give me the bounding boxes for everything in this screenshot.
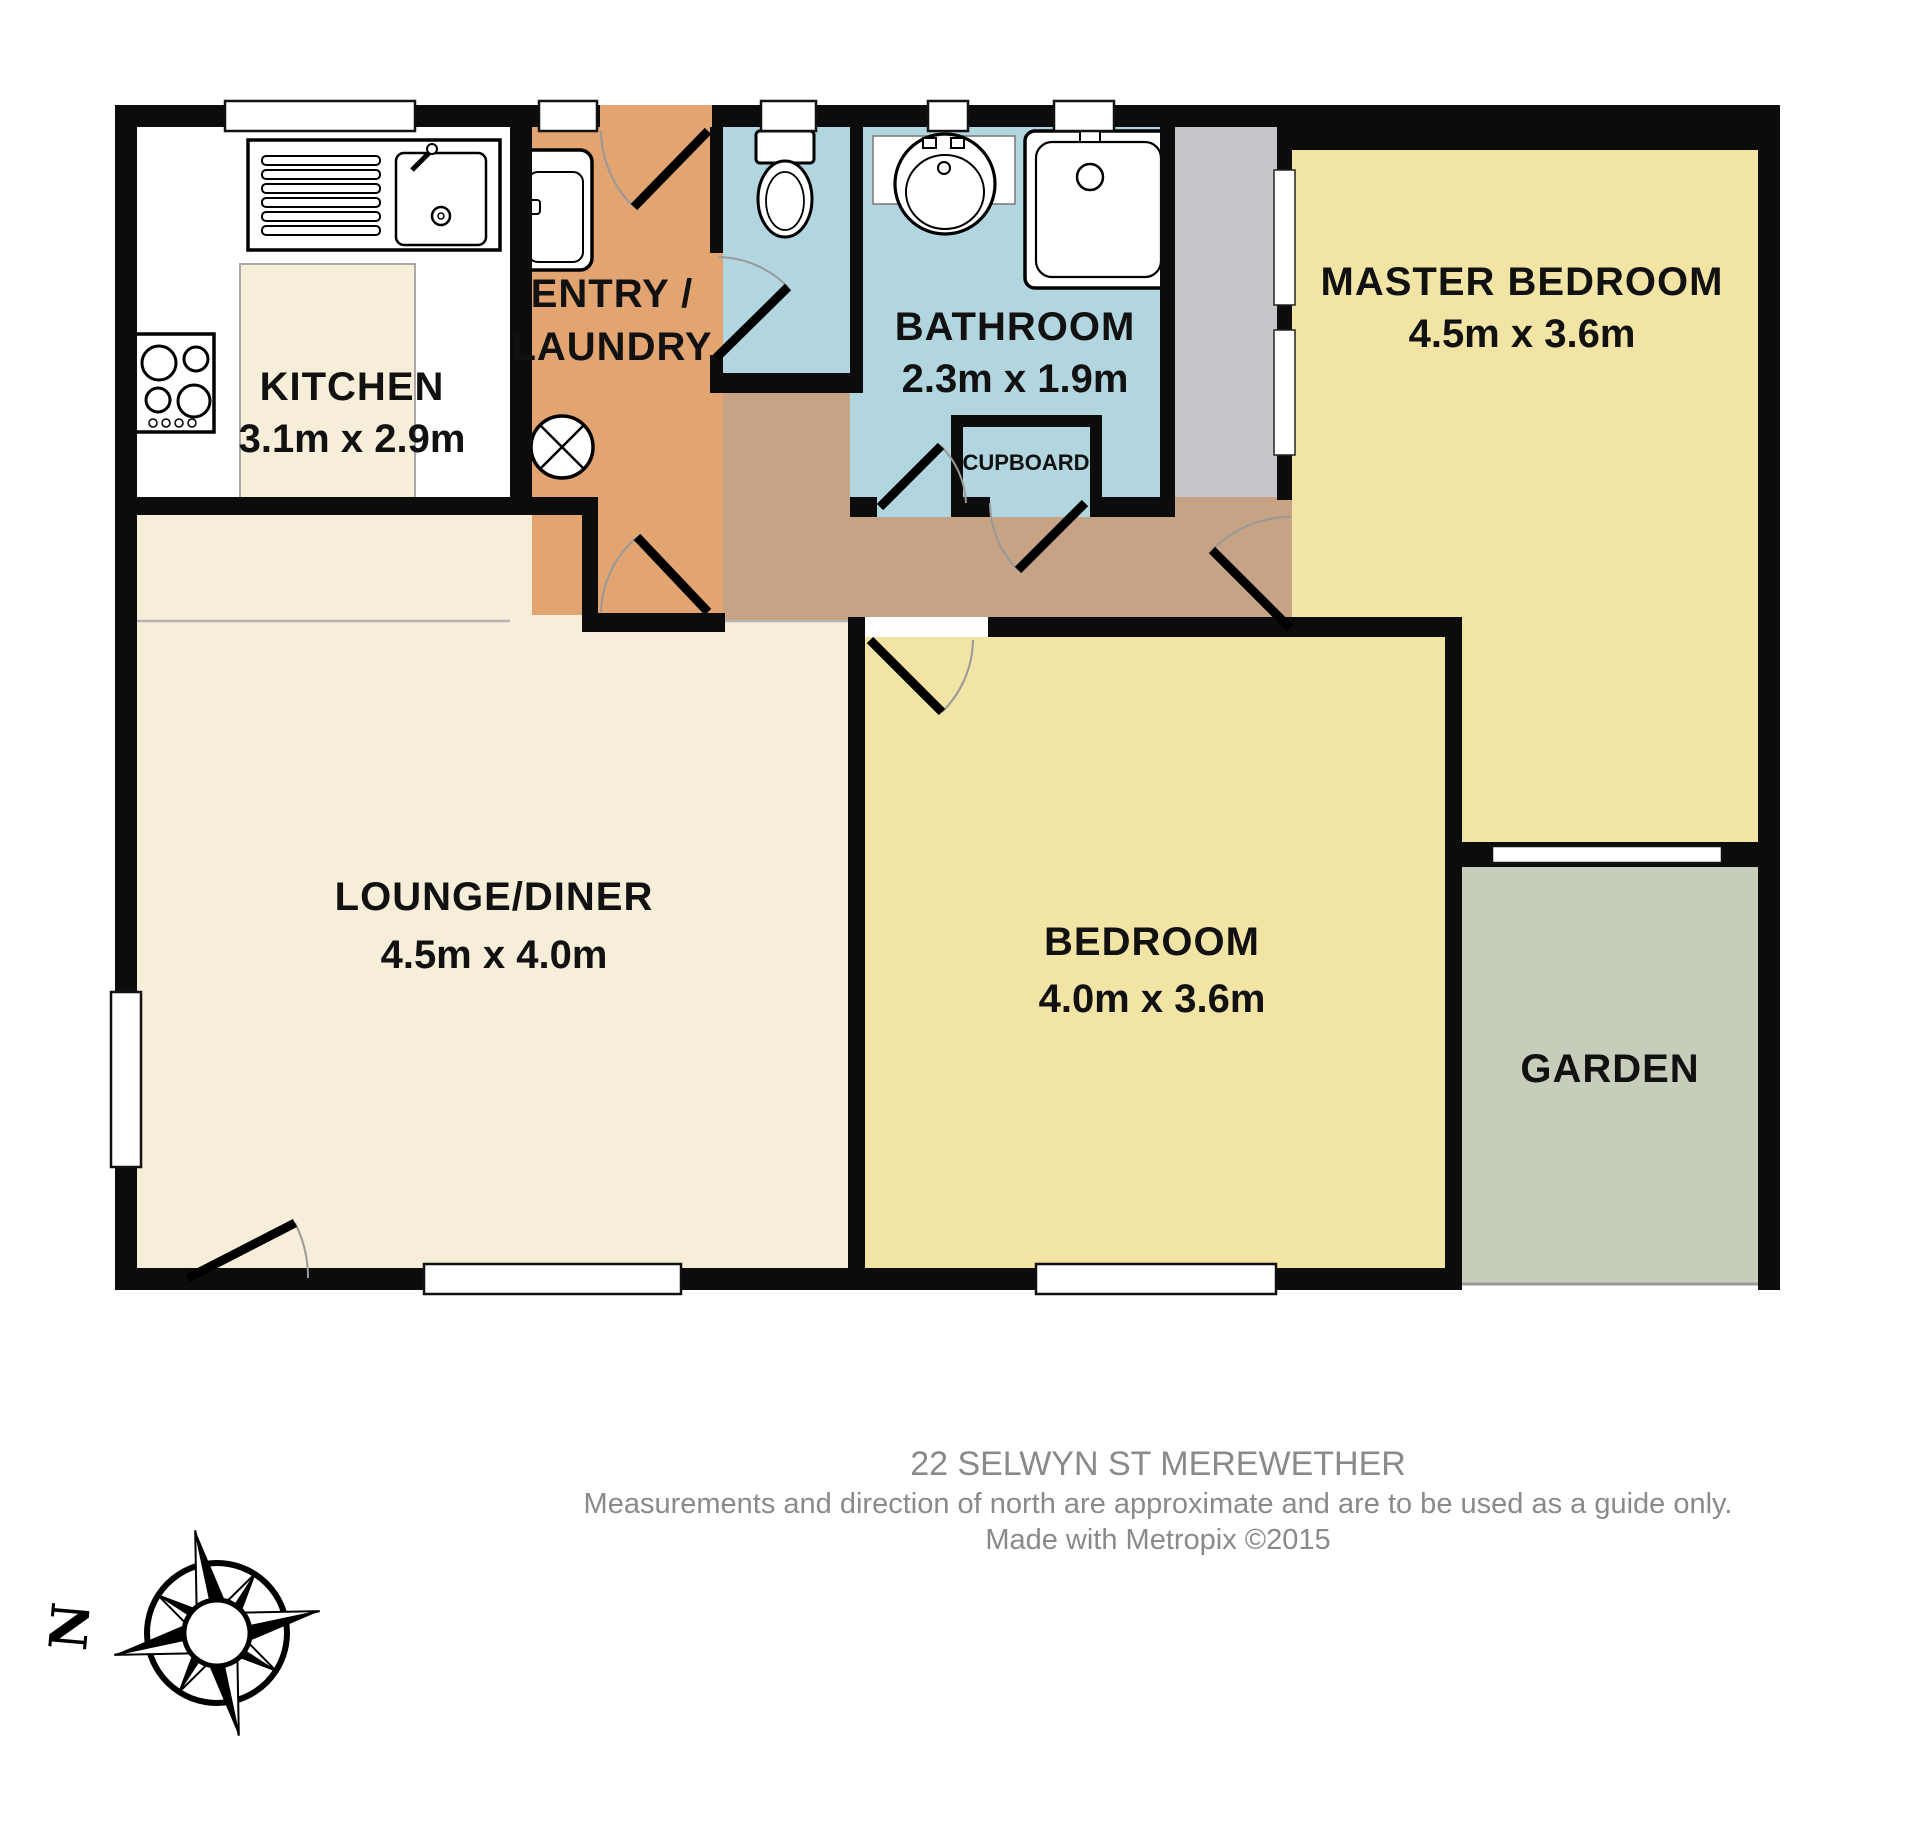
wall-cupboard-top — [951, 415, 1102, 427]
wall-entry-bottom — [598, 613, 725, 632]
wall-wc-bathroom — [850, 127, 863, 390]
hallway-floor-west — [723, 393, 850, 622]
wall-bedroom-right — [1445, 617, 1462, 1290]
window-lounge-left — [111, 992, 141, 1167]
bedroom-label: BEDROOM — [1044, 920, 1260, 964]
entry-laundry-label-line2: LAUNDRY — [511, 325, 712, 369]
lounge-diner-label: LOUNGE/DINER — [335, 875, 654, 919]
window-bathroom-2 — [1054, 101, 1114, 131]
compass-north-label: N — [38, 1600, 103, 1653]
wall-bathroom-bottom-stub — [850, 497, 877, 517]
floorplan-canvas: KITCHEN 3.1m x 2.9m ENTRY / LAUNDRY BATH… — [0, 0, 1920, 1826]
entry-laundry-label-line1: ENTRY / — [531, 272, 694, 316]
wall-top-right — [712, 105, 1780, 127]
bathtub-icon — [1025, 128, 1172, 288]
master-bedroom-label: MASTER BEDROOM — [1321, 260, 1724, 304]
footer: 22 SELWYN ST MEREWETHER Measurements and… — [584, 1445, 1733, 1556]
wall-master-top-lining — [1292, 127, 1758, 150]
garden-label: GARDEN — [1520, 1047, 1699, 1091]
wall-bedroom-top — [988, 617, 1460, 637]
wall-bedroom-top-stub — [848, 617, 865, 637]
wall-wc-bottom — [710, 373, 863, 393]
toilet-icon — [756, 131, 814, 237]
wall-right — [1758, 105, 1780, 1290]
wall-entry-wc-upper — [710, 127, 723, 253]
window-lounge-bottom — [424, 1264, 681, 1294]
wall-entry-stub — [582, 497, 598, 632]
wall-lounge-top — [137, 497, 598, 515]
wall-cupboard-left — [951, 415, 963, 497]
bedroom-dims: 4.0m x 3.6m — [1039, 977, 1266, 1021]
wall-cupboard-right — [1090, 415, 1102, 497]
window-wc — [761, 101, 816, 131]
wardrobe-door-gap-2 — [1274, 330, 1295, 455]
lounge-diner-dims: 4.5m x 4.0m — [381, 933, 608, 977]
hallway-floor-mid — [850, 517, 1175, 617]
kitchen-label: KITCHEN — [260, 365, 445, 409]
washing-machine-icon — [531, 416, 593, 478]
compass-rose-icon: N — [38, 1508, 341, 1757]
kitchen-sink-icon — [248, 140, 500, 250]
hallway-floor-east — [1175, 497, 1292, 617]
wall-kitchen-entry — [510, 105, 532, 515]
master-bedroom-dims: 4.5m x 3.6m — [1409, 312, 1636, 356]
footer-credit: Made with Metropix ©2015 — [985, 1524, 1330, 1556]
footer-address: 22 SELWYN ST MEREWETHER — [910, 1445, 1406, 1483]
wall-bathroom-right — [1160, 105, 1175, 517]
wardrobe-door-gap-1 — [1274, 170, 1295, 305]
window-bedroom-bottom — [1036, 1264, 1276, 1294]
wall-lounge-bedroom — [848, 637, 865, 1268]
window-bathroom-1 — [928, 101, 968, 131]
kitchen-dims: 3.1m x 2.9m — [239, 417, 466, 461]
wall-cupboard-bottom-stub — [951, 497, 990, 517]
bathroom-label: BATHROOM — [895, 305, 1136, 349]
bathroom-dims: 2.3m x 1.9m — [902, 357, 1129, 401]
stove-icon — [134, 334, 214, 432]
wardrobe-strip — [1175, 127, 1277, 497]
cupboard-label: CUPBOARD — [962, 450, 1089, 475]
window-kitchen — [225, 101, 415, 131]
window-garden-door — [1492, 846, 1722, 863]
floorplan-page: KITCHEN 3.1m x 2.9m ENTRY / LAUNDRY BATH… — [0, 0, 1920, 1826]
footer-disclaimer: Measurements and direction of north are … — [584, 1488, 1733, 1520]
window-laundry — [539, 101, 597, 131]
